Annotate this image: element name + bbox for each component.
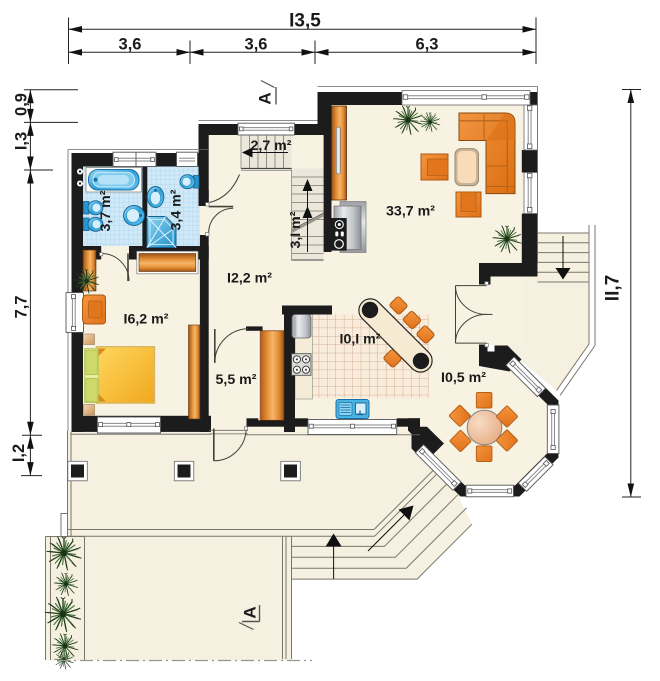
svg-text:3,6: 3,6 bbox=[119, 36, 142, 54]
svg-text:I6,2 m²: I6,2 m² bbox=[124, 312, 169, 328]
svg-text:7,7: 7,7 bbox=[13, 296, 31, 319]
svg-text:I2,2 m²: I2,2 m² bbox=[227, 271, 272, 287]
svg-text:3,6: 3,6 bbox=[245, 36, 268, 54]
svg-text:I0,I m²: I0,I m² bbox=[340, 332, 381, 348]
svg-text:II,7: II,7 bbox=[603, 275, 624, 301]
svg-text:I0,5 m²: I0,5 m² bbox=[441, 370, 486, 386]
svg-text:0,9: 0,9 bbox=[13, 93, 31, 116]
svg-text:33,7 m²: 33,7 m² bbox=[386, 204, 435, 220]
svg-text:I,3: I,3 bbox=[13, 132, 31, 150]
svg-text:I,2: I,2 bbox=[10, 444, 28, 462]
svg-text:A: A bbox=[256, 92, 275, 104]
svg-text:3,4 m²: 3,4 m² bbox=[169, 189, 185, 230]
svg-text:A: A bbox=[241, 606, 260, 618]
svg-text:I3,5: I3,5 bbox=[289, 11, 321, 32]
svg-text:3,I m²: 3,I m² bbox=[288, 211, 304, 248]
svg-text:5,5 m²: 5,5 m² bbox=[215, 372, 256, 388]
svg-text:2,7 m²: 2,7 m² bbox=[250, 138, 291, 154]
svg-text:6,3: 6,3 bbox=[416, 36, 439, 54]
svg-text:3,7 m²: 3,7 m² bbox=[98, 190, 114, 231]
